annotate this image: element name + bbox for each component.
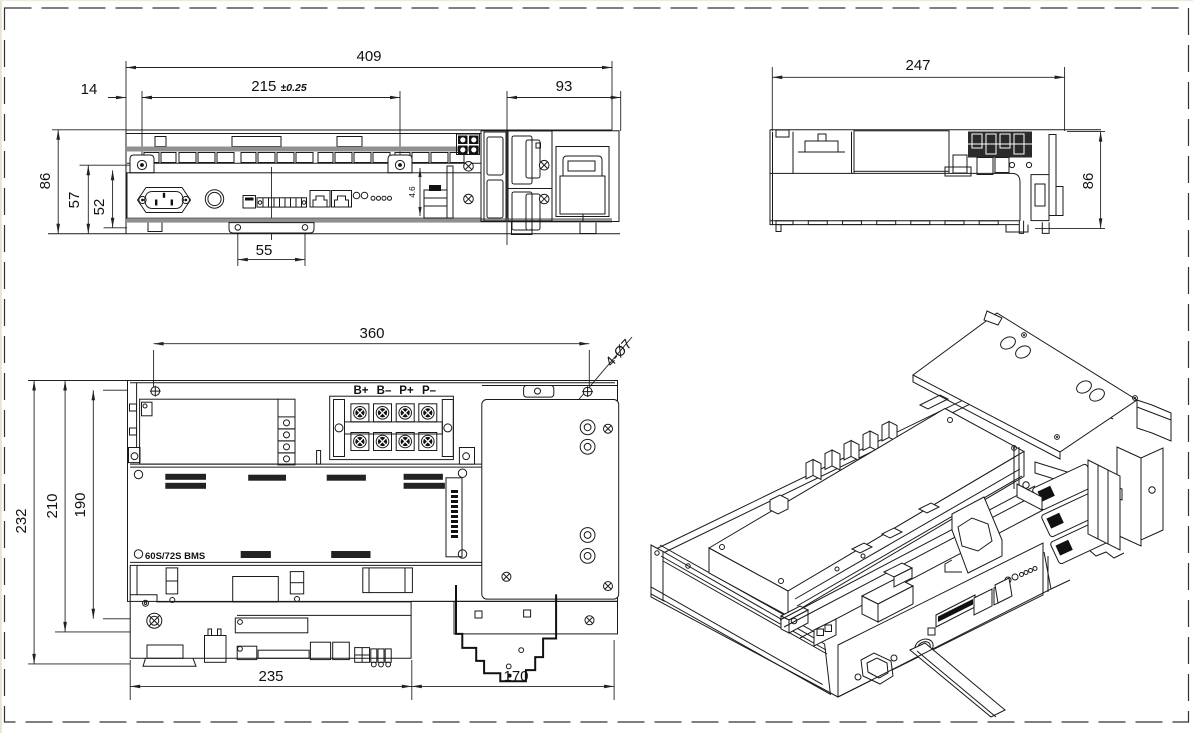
svg-text:14: 14 (81, 81, 98, 98)
svg-text:190: 190 (72, 492, 89, 517)
svg-text:57: 57 (66, 192, 83, 209)
svg-text:170: 170 (503, 668, 528, 685)
svg-text:232: 232 (13, 508, 30, 533)
svg-text:B+: B+ (353, 385, 368, 397)
svg-text:55: 55 (256, 242, 273, 259)
svg-text:P–: P– (422, 385, 437, 397)
svg-text:4.6: 4.6 (408, 186, 417, 198)
svg-text:409: 409 (356, 48, 381, 65)
svg-text:P+: P+ (399, 385, 414, 397)
svg-text:86: 86 (1080, 173, 1097, 190)
svg-text:93: 93 (556, 78, 573, 95)
svg-text:360: 360 (359, 325, 384, 342)
svg-text:86: 86 (37, 173, 54, 190)
svg-text:52: 52 (91, 199, 108, 216)
svg-text:235: 235 (258, 668, 283, 685)
svg-text:210: 210 (44, 493, 61, 518)
svg-text:B–: B– (377, 385, 392, 397)
svg-text:247: 247 (905, 57, 930, 74)
svg-text:60S/72S BMS: 60S/72S BMS (145, 551, 205, 562)
